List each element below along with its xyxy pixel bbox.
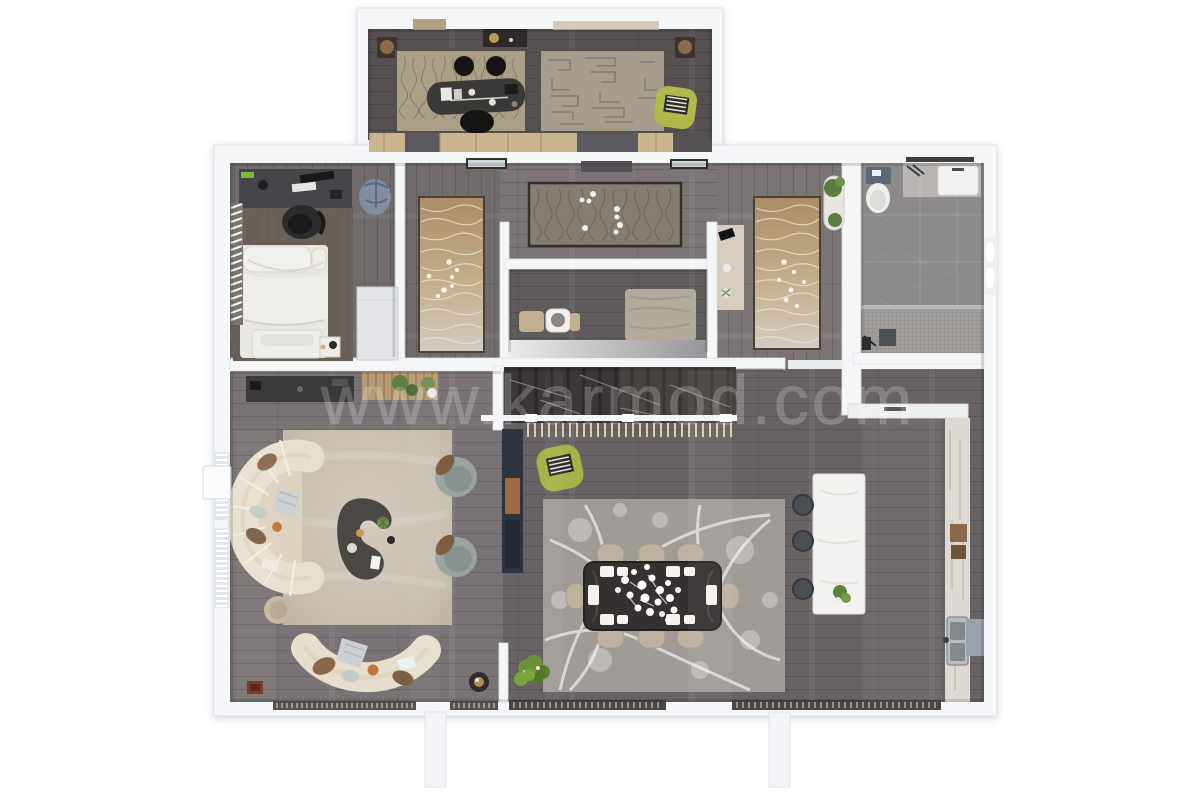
- svg-text:www.karmod.com: www.karmod.com: [320, 361, 915, 439]
